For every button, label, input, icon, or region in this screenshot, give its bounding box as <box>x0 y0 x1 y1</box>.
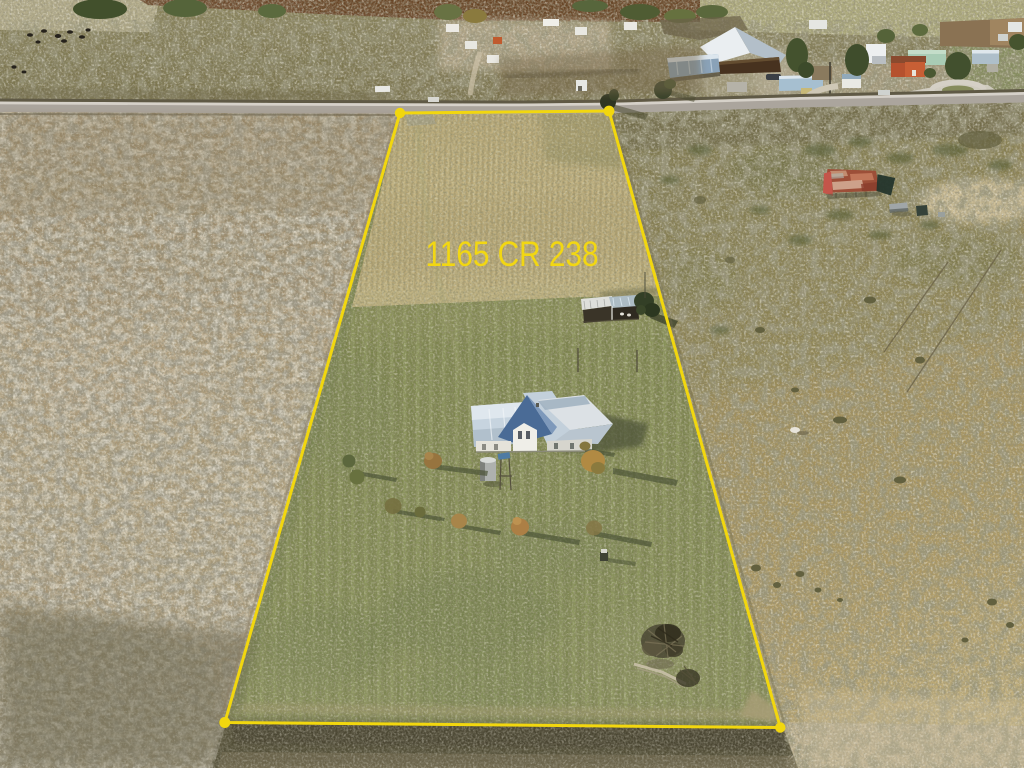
svg-text:1165 CR 238: 1165 CR 238 <box>425 235 598 274</box>
